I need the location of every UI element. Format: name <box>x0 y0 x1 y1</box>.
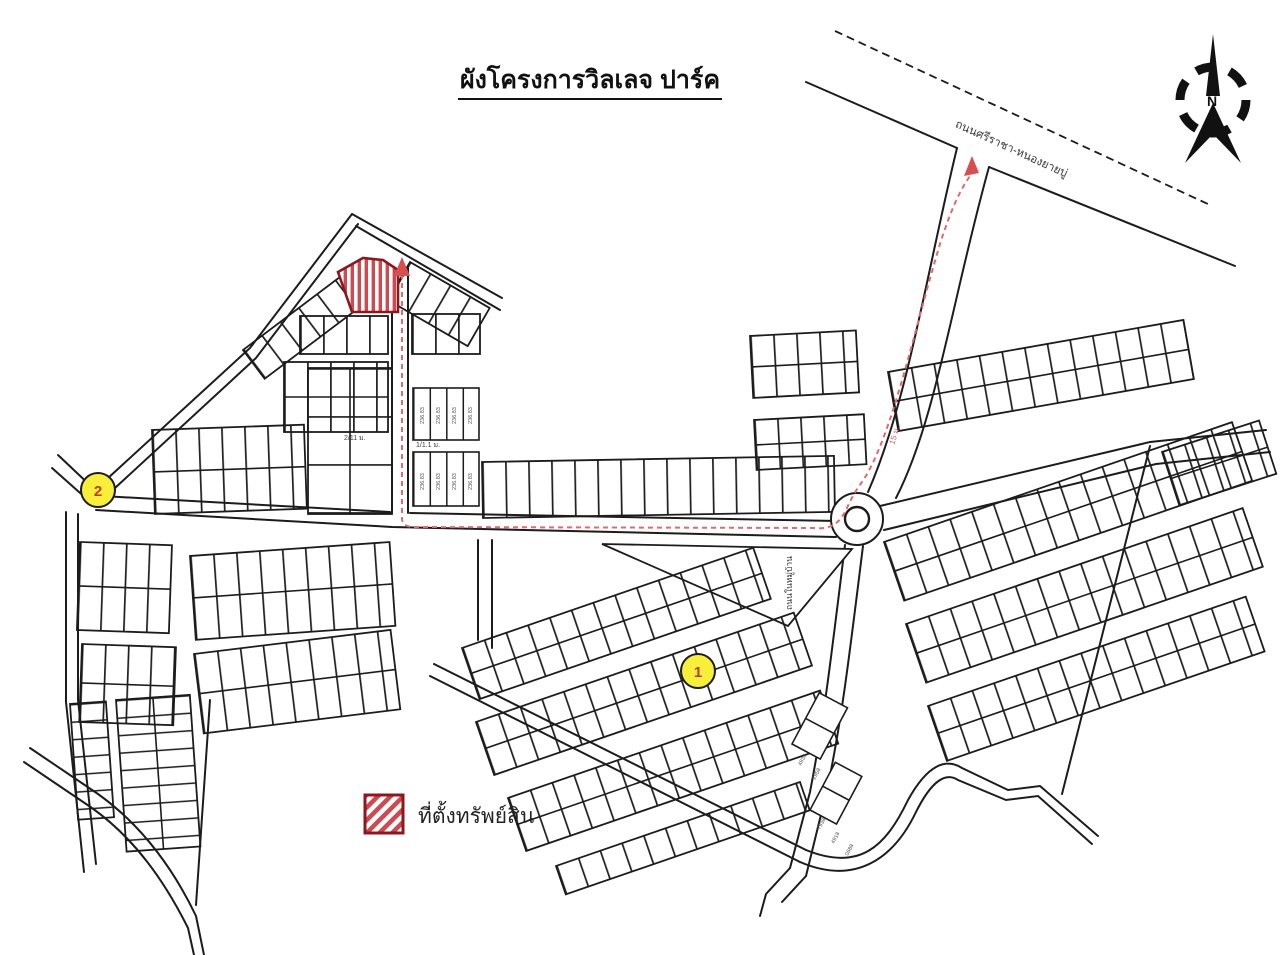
access-road-east-edge <box>896 167 989 498</box>
access-road-west-edge <box>868 148 957 492</box>
lot-number: 4918 <box>830 831 841 845</box>
legend-swatch-icon <box>365 795 403 833</box>
compass-rose: N <box>1180 34 1246 163</box>
center-lane <box>478 540 492 648</box>
lot-number: 236.83 <box>436 407 442 424</box>
roundabout <box>831 493 883 545</box>
lot-block <box>888 320 1194 431</box>
lot-number: 236.83 <box>436 473 442 490</box>
lot-number: 2958 <box>811 767 822 781</box>
lot-blocks <box>70 260 1276 895</box>
marker-2: 2 <box>81 473 115 507</box>
map-canvas: 2 1 N ผังโครงการวิลเลจ ปาร์ค ถนนศรีราชา-… <box>0 0 1280 955</box>
page-title: ผังโครงการวิลเลจ ปาร์ค <box>460 64 720 94</box>
lot-block <box>754 414 866 470</box>
site-plan-map: 2 1 N ผังโครงการวิลเลจ ปาร์ค ถนนศรีราชา-… <box>0 0 1280 955</box>
village-road-label: ถนนในหมู่บ้าน <box>784 556 795 610</box>
highway-edge-north <box>835 31 1210 205</box>
lot-number: 0688 <box>844 843 855 857</box>
lot-block <box>116 695 200 852</box>
compass-north-label: N <box>1207 93 1217 109</box>
south-road-tail <box>760 868 806 916</box>
lot-number: 236.83 <box>452 407 458 424</box>
access-road-width-label: 15 ม. <box>888 425 902 445</box>
marker-1-number: 1 <box>694 664 702 681</box>
lot-block <box>190 542 395 640</box>
marker-2-number: 2 <box>94 483 102 500</box>
lot-block <box>750 330 859 397</box>
lot-block <box>194 630 400 734</box>
lot-block <box>412 314 480 354</box>
lot-number: 236.83 <box>468 473 474 490</box>
lot-block <box>300 316 388 354</box>
lot-block <box>77 542 172 633</box>
south-star-icon <box>1185 103 1241 163</box>
lot-number: 236.83 <box>420 407 426 424</box>
highway-edge-south-west <box>806 82 957 148</box>
marker-1: 1 <box>681 654 715 688</box>
soi-left-label: 2/11 ม. <box>344 435 366 442</box>
lot-number: 7938 <box>816 817 827 831</box>
soi-right-label: 1/1.1 ม. <box>416 442 440 449</box>
lot-number: 236.83 <box>452 473 458 490</box>
route-arrow-north-icon <box>964 156 979 176</box>
lot-block <box>152 425 307 514</box>
highway-edge-south-east <box>989 167 1235 266</box>
lot-block <box>284 362 388 432</box>
lot-number: 236.83 <box>420 473 426 490</box>
legend-label: ที่ตั้งทรัพย์สิน <box>418 801 534 828</box>
lot-number: 236.83 <box>468 407 474 424</box>
lot-block <box>70 701 114 819</box>
